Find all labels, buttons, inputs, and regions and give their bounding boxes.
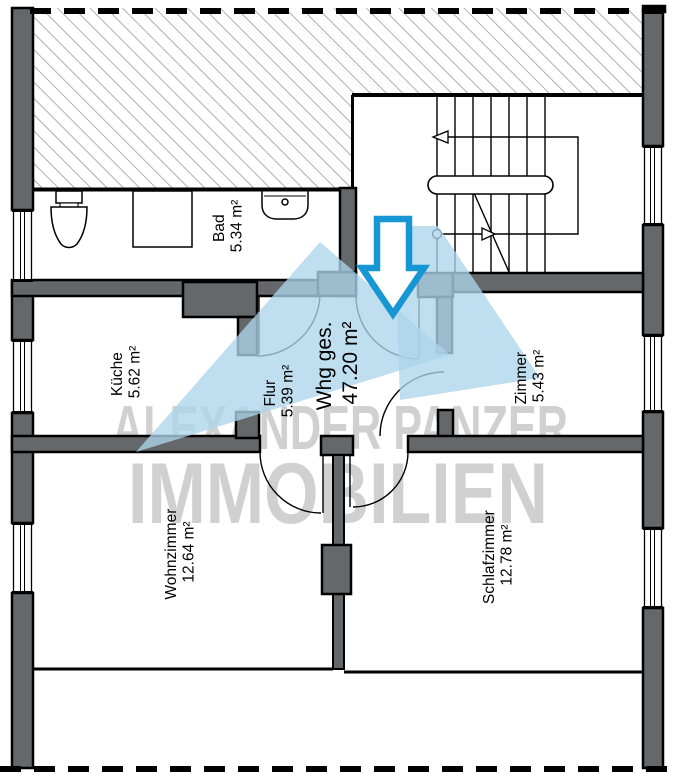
wall-right-1: [643, 10, 663, 146]
room-label-kueche: Küche 5.62 m²: [109, 346, 144, 399]
window: [643, 146, 663, 225]
window: [12, 523, 33, 593]
floor-plan: ALEXANDER PANZER IMMOBILIEN: [0, 0, 679, 782]
window: [12, 210, 33, 281]
window: [643, 528, 663, 608]
wall-midband-top-left: [12, 280, 318, 296]
wall-right-4: [643, 608, 663, 768]
shower-icon: [133, 191, 192, 247]
hatched-area-left: [33, 8, 352, 189]
wall-step-block: [183, 282, 257, 317]
wall-lower-left: [12, 436, 260, 452]
room-label-zimmer: Zimmer 5.43 m²: [513, 348, 548, 405]
wall-right-3: [643, 412, 663, 528]
hatched-area-right: [352, 8, 643, 95]
window: [643, 335, 663, 412]
window: [12, 340, 33, 413]
zimmer-door-stub: [438, 410, 453, 437]
sink-icon: [262, 189, 308, 219]
lower-door-jamb: [321, 436, 353, 455]
wall-left-3: [12, 413, 33, 523]
chimney-block: [322, 545, 351, 594]
wall-zimmer-top: [453, 273, 643, 292]
wall-left-4: [12, 593, 33, 768]
floor-plan-svg: ALEXANDER PANZER IMMOBILIEN: [0, 0, 679, 782]
wall-right-2: [643, 225, 663, 335]
stair-handrail: [428, 176, 553, 194]
wall-left-1: [12, 8, 33, 210]
wall-lower-right: [408, 436, 643, 452]
